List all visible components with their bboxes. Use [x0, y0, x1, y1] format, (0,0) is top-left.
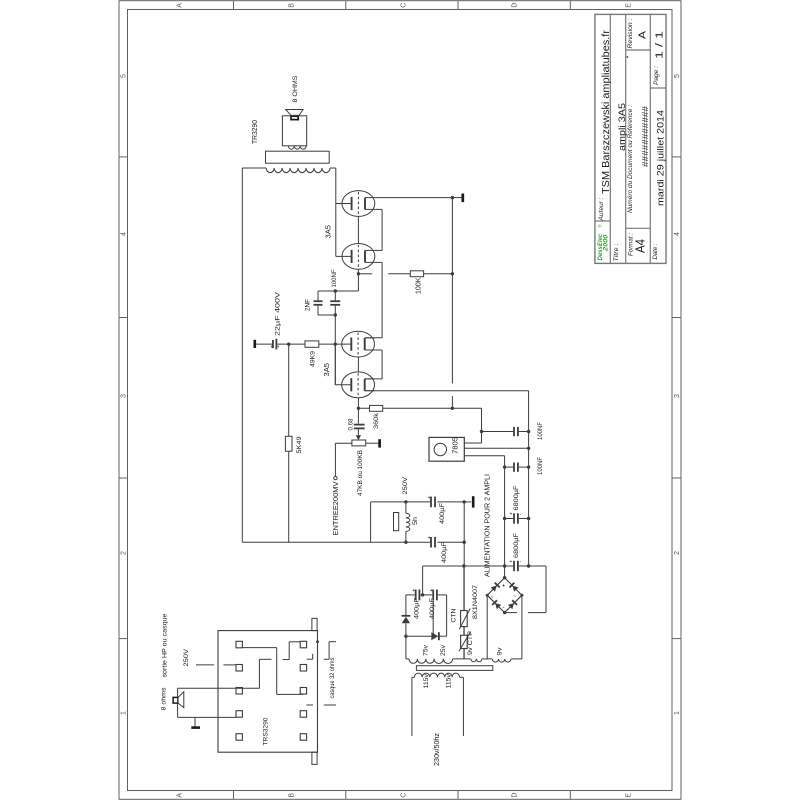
- svg-text:A4: A4: [633, 239, 648, 253]
- svg-text:6800µF: 6800µF: [513, 486, 520, 511]
- svg-text:100K: 100K: [416, 277, 423, 294]
- svg-text:5K49: 5K49: [296, 436, 303, 453]
- svg-text:8 ohms: 8 ohms: [161, 687, 168, 711]
- svg-text:B: B: [289, 3, 296, 8]
- svg-text:+: +: [428, 535, 431, 541]
- svg-text:-: -: [503, 605, 505, 611]
- svg-text:ENTREE200MV: ENTREE200MV: [331, 481, 340, 535]
- svg-text:~: ~: [490, 595, 493, 601]
- svg-text:3A5: 3A5: [322, 363, 331, 377]
- svg-text:3: 3: [674, 394, 681, 398]
- svg-text:A: A: [177, 793, 184, 798]
- svg-text:250V: 250V: [183, 648, 190, 666]
- svg-text:5: 5: [674, 74, 681, 78]
- svg-text:CTN: CTN: [451, 608, 458, 622]
- svg-text:100NF: 100NF: [537, 457, 544, 475]
- svg-text:5: 5: [121, 74, 128, 78]
- svg-text:E: E: [626, 793, 633, 798]
- svg-text:TRS3290: TRS3290: [263, 717, 270, 745]
- svg-text:Auteur :: Auteur :: [598, 197, 605, 221]
- svg-text:115v: 115v: [423, 673, 430, 689]
- svg-text:2: 2: [121, 551, 128, 555]
- svg-text:C: C: [401, 793, 408, 798]
- svg-text:6800µF: 6800µF: [513, 533, 520, 558]
- svg-text:mardi 29 juillet 2014: mardi 29 juillet 2014: [655, 110, 666, 206]
- svg-text:100NF: 100NF: [537, 422, 544, 440]
- svg-text:A: A: [177, 3, 184, 8]
- svg-text:Revision :: Revision :: [627, 18, 634, 48]
- svg-text:100NF: 100NF: [331, 270, 338, 288]
- svg-text:8 OHMS: 8 OHMS: [292, 75, 299, 103]
- svg-text:115v: 115v: [445, 673, 452, 689]
- svg-text:1: 1: [121, 711, 128, 715]
- svg-text:400µF: 400µF: [439, 503, 446, 524]
- svg-text:~: ~: [513, 594, 516, 600]
- svg-text:Page :: Page :: [653, 66, 660, 85]
- svg-text:Titre :: Titre :: [613, 243, 620, 261]
- svg-text:+: +: [412, 588, 415, 594]
- svg-text:###########: ###########: [640, 106, 650, 167]
- svg-text:Numéro du Document ou Référenc: Numéro du Document ou Référence :: [627, 105, 634, 213]
- svg-text:400µF: 400µF: [429, 598, 436, 619]
- svg-text:3: 3: [121, 394, 128, 398]
- svg-text:TSM Barszczewski ampliatubes.: TSM Barszczewski ampliatubes.fr: [601, 29, 612, 194]
- svg-text:casque 32 ohms: casque 32 ohms: [329, 657, 336, 699]
- svg-text:1 / 1: 1 / 1: [655, 30, 666, 59]
- svg-text:400µF: 400µF: [441, 542, 448, 563]
- svg-text:sortie HP ou casque: sortie HP ou casque: [162, 613, 169, 677]
- svg-text:2: 2: [674, 551, 681, 555]
- svg-text:47KB ou 100KB: 47KB ou 100KB: [357, 449, 364, 496]
- svg-text:ALIMENTATION POUR 2 AMPLI: ALIMENTATION POUR 2 AMPLI: [482, 474, 491, 577]
- svg-text:22µF 400V: 22µF 400V: [275, 291, 282, 336]
- svg-text:4: 4: [674, 232, 681, 236]
- svg-text:9v: 9v: [496, 646, 503, 655]
- svg-text:+: +: [428, 495, 431, 501]
- svg-text:C: C: [401, 3, 408, 8]
- svg-text:0.68: 0.68: [347, 418, 354, 430]
- svg-text:2000: 2000: [603, 234, 610, 252]
- svg-text:4: 4: [121, 232, 128, 236]
- svg-text:49K9: 49K9: [310, 351, 317, 367]
- svg-text:TR3290: TR3290: [252, 120, 259, 144]
- svg-text:8X1N4007: 8X1N4007: [472, 585, 479, 619]
- svg-text:400µF: 400µF: [413, 598, 420, 619]
- svg-text:B: B: [289, 793, 296, 798]
- svg-text:230v/50hz: 230v/50hz: [434, 732, 441, 766]
- svg-text:2NF: 2NF: [304, 299, 311, 311]
- svg-text:Date :: Date :: [652, 243, 659, 259]
- svg-text:1: 1: [674, 711, 681, 715]
- svg-text:D: D: [512, 793, 519, 798]
- svg-text:3A5: 3A5: [323, 225, 332, 239]
- svg-text:D: D: [512, 3, 519, 8]
- svg-text:9v CTP: 9v CTP: [467, 630, 474, 655]
- svg-text:360k: 360k: [373, 412, 380, 429]
- svg-text:+: +: [502, 583, 506, 589]
- svg-text:+: +: [510, 559, 513, 565]
- svg-text:250V: 250V: [402, 476, 409, 494]
- svg-text:+: +: [430, 588, 433, 594]
- svg-text:+: +: [510, 512, 513, 518]
- svg-text:A: A: [638, 31, 649, 39]
- svg-text:25v: 25v: [440, 644, 447, 656]
- svg-text:75v: 75v: [422, 644, 429, 656]
- svg-text:7805: 7805: [452, 437, 459, 454]
- svg-text:E: E: [626, 3, 633, 8]
- svg-text:5h: 5h: [412, 517, 419, 525]
